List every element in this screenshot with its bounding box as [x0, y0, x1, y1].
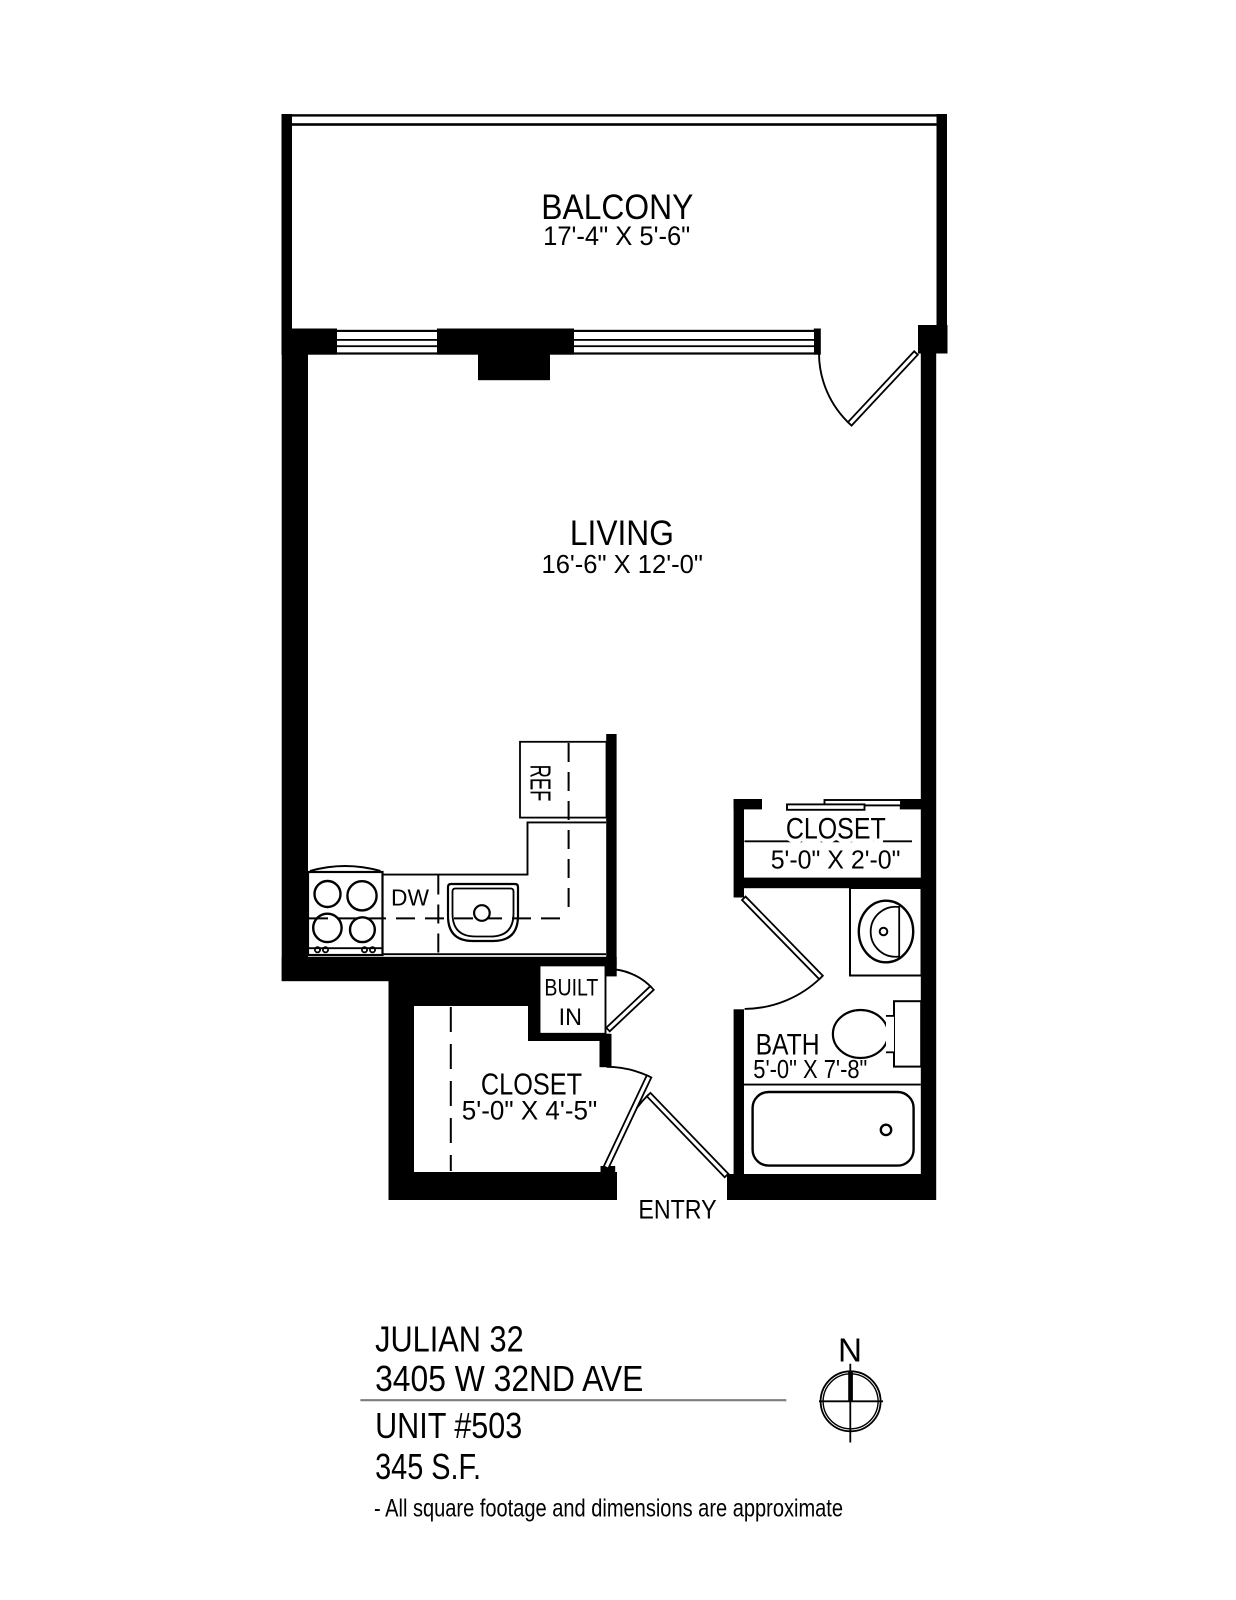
- svg-text:DW: DW: [391, 884, 430, 910]
- svg-text:REF: REF: [524, 765, 556, 802]
- svg-text:5'-0" X 7'-8": 5'-0" X 7'-8": [753, 1054, 867, 1084]
- svg-text:- All square footage and dimen: - All square footage and dimensions are …: [374, 1495, 843, 1523]
- svg-text:345 S.F.: 345 S.F.: [375, 1446, 481, 1487]
- svg-text:BUILT: BUILT: [544, 974, 598, 1001]
- svg-text:IN: IN: [559, 1004, 582, 1031]
- svg-text:CLOSET: CLOSET: [786, 813, 886, 846]
- svg-text:UNIT #503: UNIT #503: [375, 1405, 522, 1446]
- svg-text:LIVING: LIVING: [570, 513, 674, 553]
- svg-text:JULIAN 32: JULIAN 32: [375, 1318, 524, 1359]
- svg-text:5'-0" X 4'-5": 5'-0" X 4'-5": [462, 1095, 598, 1125]
- svg-text:17'-4" X 5'-6": 17'-4" X 5'-6": [543, 221, 690, 251]
- svg-text:3405 W 32ND AVE: 3405 W 32ND AVE: [375, 1358, 643, 1399]
- svg-text:5'-0" X 2'-0": 5'-0" X 2'-0": [771, 844, 901, 874]
- svg-text:ENTRY: ENTRY: [638, 1195, 716, 1225]
- svg-text:16'-6" X 12'-0": 16'-6" X 12'-0": [542, 549, 703, 579]
